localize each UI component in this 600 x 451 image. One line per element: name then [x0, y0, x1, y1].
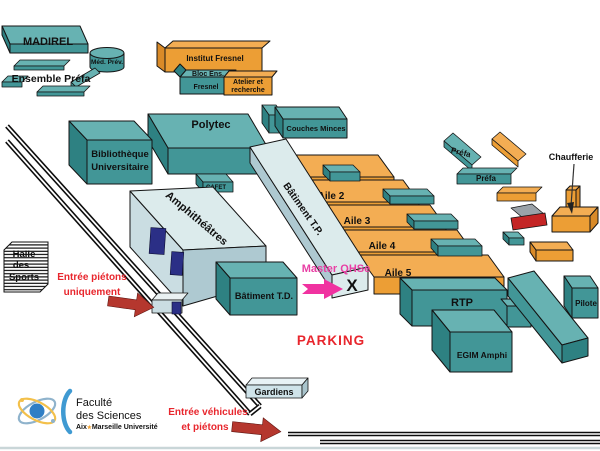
batiment-td-label: Bâtiment T.D. [235, 291, 293, 301]
logo-subline: Aix★Marseille Université [76, 424, 158, 431]
building-couches-minces: Couches Minces [262, 105, 347, 138]
rooftop-box [407, 214, 458, 229]
madirel-label: MADIREL [23, 36, 73, 48]
atom-icon [15, 394, 59, 429]
building-orange-bar-2 [497, 187, 542, 201]
chaufferie-label: Chaufferie [549, 152, 594, 162]
pilote-label: Pilote [575, 299, 597, 308]
building-batiment-td: Bâtiment T.D. [216, 262, 297, 315]
institut-fresnel-label: Institut Fresnel [186, 54, 243, 63]
rtp-label: RTP [451, 297, 473, 309]
entree-vehicules-annotation: Entrée véhicules et piétons [168, 407, 282, 444]
aile-4-label: Aile 4 [369, 241, 396, 252]
building-prefa-1: Préfa [444, 133, 481, 171]
building-bibliotheque: Bibliothèque Universitaire [69, 121, 152, 184]
parking-label: PARKING [297, 333, 365, 348]
faculte-sciences-logo: Faculté des Sciences Aix★Marseille Unive… [15, 391, 158, 432]
aile-5-label: Aile 5 [385, 268, 412, 279]
prefa-2-label: Préfa [476, 174, 497, 183]
polytec-label: Polytec [191, 119, 230, 131]
building-ensemble-prefa: Ensemble Préfa [2, 60, 100, 96]
rooftop-box [323, 165, 360, 181]
building-madirel: MADIREL [2, 26, 88, 53]
building-egim-amphi: EGIM Amphi [432, 310, 512, 372]
master-x-mark: X [346, 276, 358, 295]
rooftop-box [503, 232, 524, 245]
rooftop-box [383, 189, 434, 204]
atelier-label1: Atelier et [233, 79, 264, 86]
entree-vehicules-arrow-icon [231, 415, 282, 444]
building-chaufferie [552, 186, 598, 232]
building-prefa-2: Préfa [457, 168, 517, 184]
building-pilote: Pilote [564, 276, 598, 318]
entree-vehicules-label2: et piétons [181, 422, 229, 433]
couches-minces-label: Couches Minces [286, 124, 345, 133]
building-halle-des-sports: Halle des Sports [4, 242, 48, 292]
entree-vehicules-label1: Entrée véhicules [168, 407, 248, 418]
atelier-label2: recherche [231, 87, 265, 94]
aile-3-label: Aile 3 [344, 216, 371, 227]
road-bottom-horizontal [288, 434, 600, 442]
halle-label2: des [13, 260, 29, 271]
amphitheatres-door-icon [149, 228, 166, 255]
entree-pietons-annotation: Entrée piétons uniquement [57, 272, 155, 319]
building-polytec: Polytec [148, 114, 268, 174]
bloc-ens-label1: Bloc Ens. [192, 71, 224, 78]
ensemble-prefa-label: Ensemble Préfa [12, 73, 91, 85]
chaufferie-annotation: Chaufferie [549, 152, 594, 214]
building-institut-fresnel: Institut Fresnel [157, 41, 270, 72]
logo-arc-icon [63, 391, 70, 432]
bibliotheque-label2: Universitaire [91, 162, 149, 173]
logo-line2: des Sciences [76, 410, 142, 422]
building-orange-bar-1 [492, 132, 526, 167]
master-qhse-label: Master QHSe [302, 263, 370, 275]
building-orange-box-right [530, 242, 573, 261]
rooftop-box [431, 239, 482, 256]
building-gardiens: Gardiens [246, 378, 308, 398]
gardiens-label: Gardiens [254, 387, 293, 397]
building-atelier-recherche: Atelier et recherche [224, 71, 277, 95]
logo-line1: Faculté [76, 397, 112, 409]
entree-pietons-label1: Entrée piétons [57, 272, 127, 283]
bibliotheque-label1: Bibliothèque [91, 149, 149, 160]
building-red-slab [511, 204, 547, 230]
med-prev-label: Méd. Prév. [91, 59, 123, 66]
amphitheatres-door-icon [170, 252, 184, 276]
bloc-ens-label2: Fresnel [194, 84, 219, 91]
gate-door-icon [172, 302, 181, 314]
campus-map-svg: MADIREL Méd. Prév. Ensemble Préfa Instit… [0, 0, 600, 451]
halle-label3: Sports [9, 272, 39, 283]
egim-amphi-label: EGIM Amphi [457, 350, 507, 360]
halle-label1: Halle [13, 249, 36, 260]
campus-map: MADIREL Méd. Prév. Ensemble Préfa Instit… [0, 0, 600, 451]
